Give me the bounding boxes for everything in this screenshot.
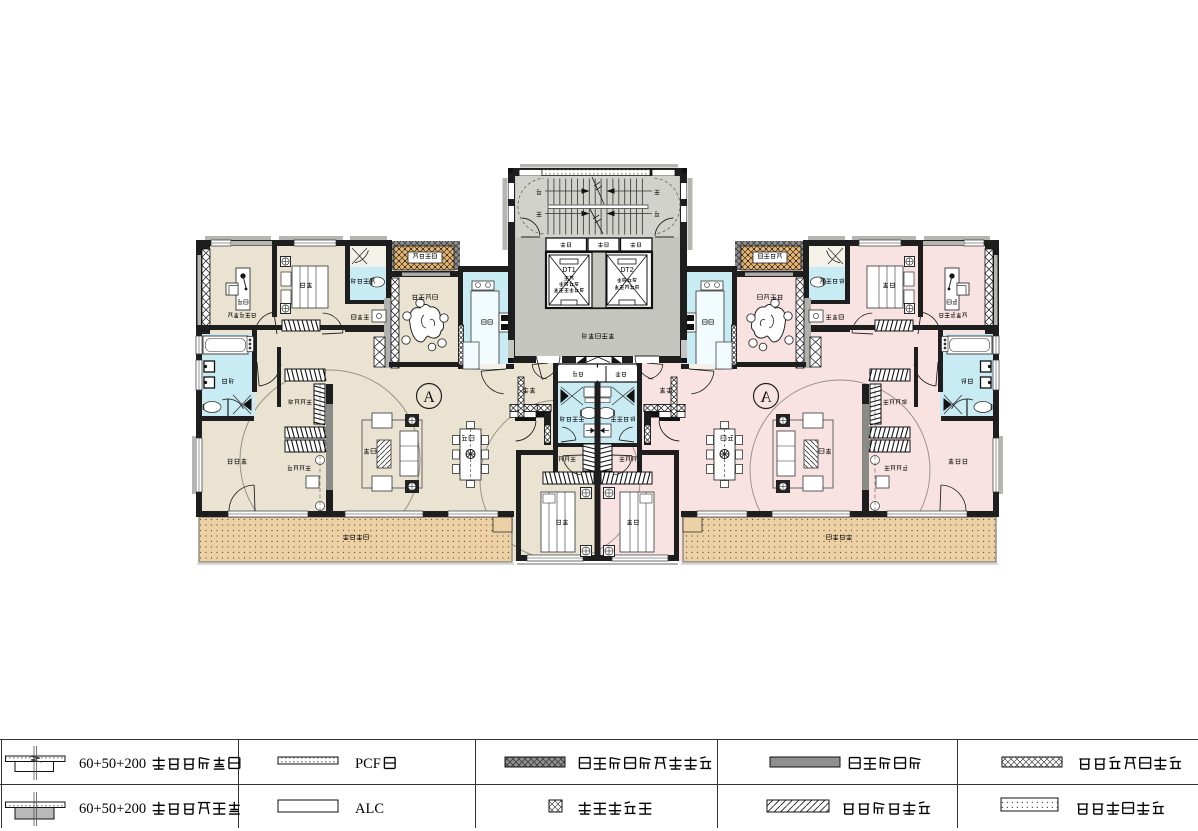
svg-text:DT2: DT2 <box>620 267 633 274</box>
svg-text:60+50+200: 60+50+200 <box>79 756 146 772</box>
svg-text:PCF: PCF <box>355 756 381 772</box>
svg-text:60+50+200: 60+50+200 <box>79 801 146 817</box>
svg-text:A: A <box>423 389 435 406</box>
svg-text:DT1: DT1 <box>562 267 575 274</box>
svg-text:ALC: ALC <box>355 801 384 817</box>
